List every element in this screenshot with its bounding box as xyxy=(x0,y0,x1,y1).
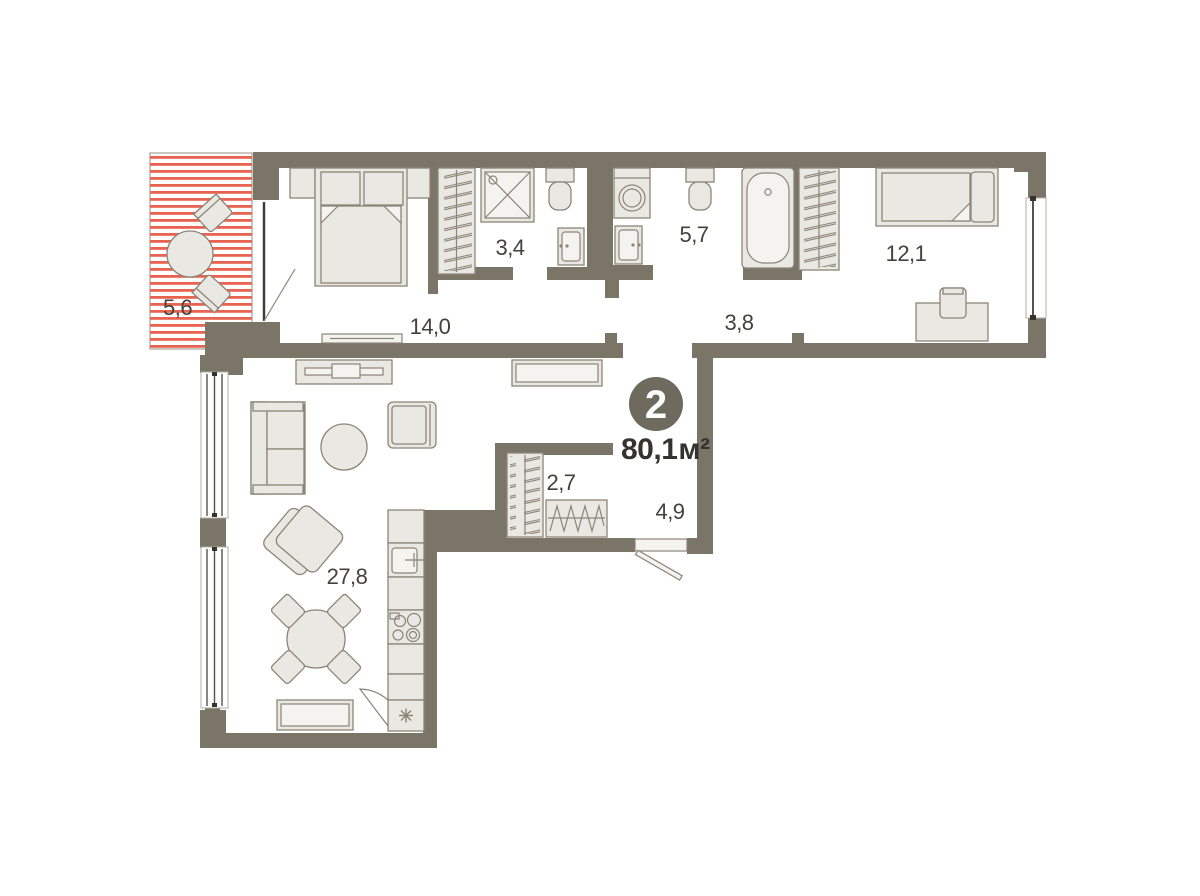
coffee-table xyxy=(321,424,367,470)
wardrobe-icon xyxy=(507,453,543,537)
sideboard xyxy=(277,700,353,730)
tv-console xyxy=(296,360,392,384)
nightstand xyxy=(404,168,430,198)
floor-plan: 5,6 14,0 3,4 5,7 3,8 12,1 2,7 4,9 27,8 2… xyxy=(0,0,1200,896)
total-area: 80,1м² xyxy=(621,433,710,466)
area-label-bedroom2: 12,1 xyxy=(886,241,927,266)
area-label-bathroom: 5,7 xyxy=(679,222,708,247)
area-label-balcony: 5,6 xyxy=(163,295,192,320)
bathroom-fixtures xyxy=(614,168,794,268)
area-label-closet: 2,7 xyxy=(546,470,575,495)
single-bed xyxy=(876,168,998,226)
kitchen-counter xyxy=(360,510,424,731)
sink-icon xyxy=(558,228,584,265)
toilet-icon xyxy=(686,168,714,210)
sink-icon xyxy=(615,226,642,264)
floor-plan-page: 5,6 14,0 3,4 5,7 3,8 12,1 2,7 4,9 27,8 2… xyxy=(0,0,1200,896)
shower-icon xyxy=(481,168,534,222)
window xyxy=(201,547,228,708)
area-label-entrance-hall: 4,9 xyxy=(655,499,684,524)
wardrobe-icon xyxy=(546,500,607,537)
area-label-bedroom: 14,0 xyxy=(410,314,451,339)
closet-furniture xyxy=(507,453,607,537)
desk-chair xyxy=(940,288,966,318)
wardrobe-icon xyxy=(438,168,475,274)
window xyxy=(201,372,228,518)
window xyxy=(1026,196,1046,320)
nightstand xyxy=(290,168,315,198)
stove-icon xyxy=(388,610,424,644)
sideboard xyxy=(512,360,602,386)
hall-wardrobe-icon xyxy=(799,168,839,270)
double-bed xyxy=(315,168,407,286)
balcony-table xyxy=(167,231,213,277)
rooms-count: 2 xyxy=(645,383,667,427)
armchair xyxy=(388,402,436,448)
area-label-hallway: 3,8 xyxy=(724,310,753,335)
washing-machine-icon xyxy=(614,168,650,218)
entrance-door xyxy=(635,539,687,580)
kitchen-sink-icon xyxy=(388,543,424,577)
balcony-door xyxy=(256,200,295,322)
toilet-icon xyxy=(546,168,574,210)
tv-panel xyxy=(322,334,402,343)
area-label-shower-room: 3,4 xyxy=(495,235,524,260)
area-label-living: 27,8 xyxy=(327,564,368,589)
sofa xyxy=(251,402,305,494)
bathtub-icon xyxy=(742,168,794,268)
plan-badge: 2 80,1м² xyxy=(621,377,710,466)
